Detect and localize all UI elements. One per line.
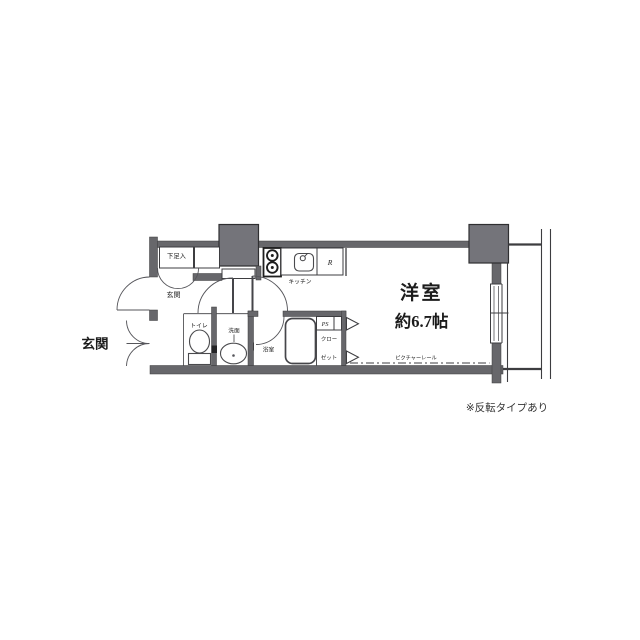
washbasin — [221, 343, 247, 364]
kitchen-area: R キッチン — [264, 248, 347, 286]
plan-note: ※反転タイプあり — [466, 402, 548, 414]
toilet-label: トイレ — [190, 324, 208, 330]
faucet-icon — [300, 256, 305, 261]
bathroom-label: 浴室 — [263, 346, 275, 354]
toilet-bowl — [190, 330, 210, 353]
toilet-right-wall — [212, 307, 217, 366]
closet-right-wall — [342, 311, 347, 366]
toilet-fixture — [212, 346, 218, 354]
closet-door-arrow-icon — [347, 351, 359, 364]
shoe-storage-label: 下足入 — [167, 252, 187, 260]
closet-label-line1: クロー — [321, 336, 337, 343]
closet-label-line2: ゼット — [321, 354, 337, 362]
ps-closet: PS クロー ゼット — [317, 311, 359, 366]
entrance-door-swing-upper — [117, 277, 150, 310]
exterior-lines — [503, 229, 551, 382]
entrance-hall-label: 玄関 — [167, 290, 181, 299]
hall-door-swing — [253, 276, 288, 311]
kitchen-side-stub — [256, 266, 261, 280]
washroom-label: 洗面 — [228, 327, 240, 335]
burner-dot-icon — [271, 266, 274, 269]
toilet-tank — [189, 354, 211, 365]
room-name-label: 洋室 — [400, 281, 443, 304]
kitchen-label: キッチン — [288, 279, 311, 286]
pillar-top-right — [469, 225, 509, 264]
wall-bottom — [150, 366, 503, 375]
drain-icon — [232, 354, 235, 357]
wall-left-upper — [150, 237, 158, 277]
closet-door-arrow-icon — [347, 318, 359, 331]
bath-top-wall-a — [248, 311, 258, 317]
picture-rail-label: ピクチャーレール — [395, 355, 436, 362]
wall-left-pier — [150, 310, 158, 321]
western-room: 洋室 約6.7帖 ピクチャーレール — [350, 281, 490, 363]
room-size-label: 約6.7帖 — [395, 311, 449, 331]
entrance-door-swing-left-leaf — [127, 321, 150, 344]
entrance-door-swing-right-leaf — [127, 344, 150, 367]
pipe-space-label: PS — [321, 321, 329, 328]
bathtub — [286, 319, 316, 364]
shoe-storage-door-swings — [157, 268, 198, 289]
entrance-outside-label: 玄関 — [82, 336, 109, 352]
floorplan-page: 玄関 下足入 玄関 R キッチン — [0, 0, 640, 640]
pillar-top-left — [219, 225, 259, 267]
counter-under-pillar — [222, 269, 255, 279]
bathroom-door-swing — [256, 317, 284, 345]
balcony-window — [490, 284, 509, 343]
wall-right-lower — [492, 343, 501, 383]
pipe-space-box-small — [334, 317, 342, 331]
bath-top-wall-b — [283, 311, 346, 317]
burner-dot-icon — [271, 254, 274, 257]
floorplan-drawing: 玄関 下足入 玄関 R キッチン — [0, 0, 640, 640]
storage-cabinet — [195, 247, 220, 268]
toilet-room: トイレ — [189, 307, 218, 366]
refrigerator-label: R — [327, 258, 333, 267]
wall-right-upper — [492, 263, 501, 284]
bath-left-wall — [248, 311, 254, 366]
entrance-doors — [117, 277, 150, 366]
